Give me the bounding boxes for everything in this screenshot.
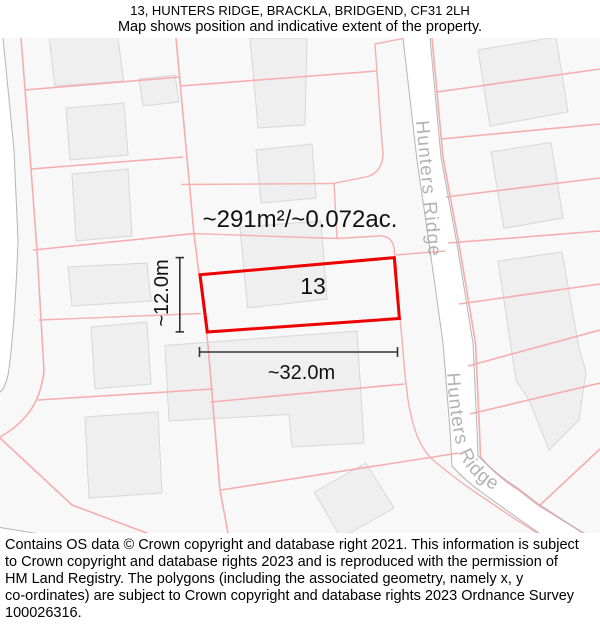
svg-text:13: 13 [300, 273, 326, 299]
svg-text:~32.0m: ~32.0m [268, 362, 335, 384]
svg-text:~12.0m: ~12.0m [151, 259, 173, 326]
svg-text:~291m²/~0.072ac.: ~291m²/~0.072ac. [203, 206, 398, 233]
